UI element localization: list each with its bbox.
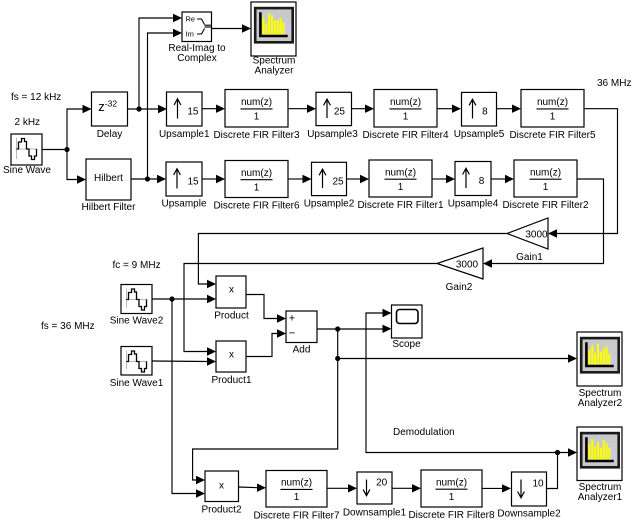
svg-text:1: 1 <box>550 112 556 123</box>
svg-text:Im: Im <box>186 30 194 39</box>
svg-text:Product2: Product2 <box>201 505 241 516</box>
svg-text:Analyzer1: Analyzer1 <box>578 492 623 503</box>
svg-text:num(z): num(z) <box>530 167 561 178</box>
svg-text:1: 1 <box>449 492 455 503</box>
svg-text:Hilbert: Hilbert <box>94 173 123 184</box>
svg-text:Add: Add <box>293 345 311 356</box>
svg-text:num(z): num(z) <box>241 168 272 179</box>
svg-text:Discrete FIR Filter1: Discrete FIR Filter1 <box>357 200 444 211</box>
svg-text:Discrete FIR Filter2: Discrete FIR Filter2 <box>502 200 589 211</box>
svg-text:fs = 12 kHz: fs = 12 kHz <box>11 92 61 103</box>
svg-text:num(z): num(z) <box>390 97 421 108</box>
svg-text:Discrete FIR Filter4: Discrete FIR Filter4 <box>362 130 449 141</box>
svg-text:+: + <box>289 313 295 325</box>
svg-text:1: 1 <box>254 182 260 193</box>
svg-text:Discrete FIR Filter5: Discrete FIR Filter5 <box>509 130 596 141</box>
svg-text:Upsample5: Upsample5 <box>454 129 505 140</box>
svg-text:Downsample2: Downsample2 <box>497 509 561 520</box>
svg-text:Analyzer: Analyzer <box>255 66 295 77</box>
svg-text:8: 8 <box>482 107 488 118</box>
svg-text:36 MHz: 36 MHz <box>597 78 631 89</box>
svg-text:Upsample3: Upsample3 <box>307 129 358 140</box>
svg-text:1: 1 <box>543 182 549 193</box>
svg-text:25: 25 <box>334 106 346 117</box>
svg-text:Upsample2: Upsample2 <box>304 199 355 210</box>
svg-text:Sine Wave: Sine Wave <box>3 165 51 176</box>
svg-text:Product: Product <box>214 311 249 322</box>
svg-text:x: x <box>229 350 234 361</box>
svg-text:15: 15 <box>187 107 199 118</box>
svg-text:15: 15 <box>187 177 199 188</box>
svg-text:1: 1 <box>403 112 409 123</box>
svg-text:fc = 9 MHz: fc = 9 MHz <box>113 260 161 271</box>
svg-text:Re: Re <box>186 15 196 24</box>
svg-text:Sine Wave1: Sine Wave1 <box>110 378 164 389</box>
svg-text:num(z): num(z) <box>385 167 416 178</box>
svg-text:Complex: Complex <box>177 53 216 64</box>
svg-text:20: 20 <box>376 478 388 489</box>
svg-text:Delay: Delay <box>97 129 123 140</box>
svg-text:z: z <box>98 99 105 114</box>
svg-text:Upsample1: Upsample1 <box>159 129 210 140</box>
svg-text:Sine Wave2: Sine Wave2 <box>110 316 164 327</box>
svg-text:x: x <box>219 481 224 492</box>
svg-text:Scope: Scope <box>392 339 421 350</box>
svg-text:Discrete FIR Filter6: Discrete FIR Filter6 <box>213 201 300 212</box>
svg-text:Upsample: Upsample <box>161 199 206 210</box>
svg-text:Discrete FIR Filter3: Discrete FIR Filter3 <box>213 130 300 141</box>
svg-text:25: 25 <box>332 176 344 187</box>
svg-text:−: − <box>289 328 295 340</box>
svg-text:Product1: Product1 <box>211 375 251 386</box>
svg-text:3000: 3000 <box>456 259 479 270</box>
svg-text:Gain1: Gain1 <box>516 252 543 263</box>
svg-text:Discrete FIR Filter8: Discrete FIR Filter8 <box>408 510 495 521</box>
svg-text:Demodulation: Demodulation <box>393 427 455 438</box>
svg-text:num(z): num(z) <box>241 97 272 108</box>
svg-text:Analyzer2: Analyzer2 <box>578 398 623 409</box>
svg-text:Gain2: Gain2 <box>446 282 473 293</box>
svg-text:3000: 3000 <box>525 229 548 240</box>
svg-text:fs = 36 MHz: fs = 36 MHz <box>41 321 95 332</box>
svg-text:-32: -32 <box>105 98 118 108</box>
svg-text:Upsample4: Upsample4 <box>448 199 499 210</box>
svg-text:1: 1 <box>398 182 404 193</box>
svg-text:1: 1 <box>254 112 260 123</box>
svg-text:2 kHz: 2 kHz <box>15 117 41 128</box>
svg-text:x: x <box>229 285 234 296</box>
svg-text:8: 8 <box>479 176 485 187</box>
svg-text:10: 10 <box>532 479 544 490</box>
svg-text:Hilbert Filter: Hilbert Filter <box>82 202 137 213</box>
svg-text:num(z): num(z) <box>281 478 312 489</box>
svg-text:Discrete FIR Filter7: Discrete FIR Filter7 <box>253 511 340 522</box>
svg-text:num(z): num(z) <box>436 477 467 488</box>
svg-text:1: 1 <box>294 492 300 503</box>
svg-text:num(z): num(z) <box>537 97 568 108</box>
svg-text:Downsample1: Downsample1 <box>343 508 407 519</box>
